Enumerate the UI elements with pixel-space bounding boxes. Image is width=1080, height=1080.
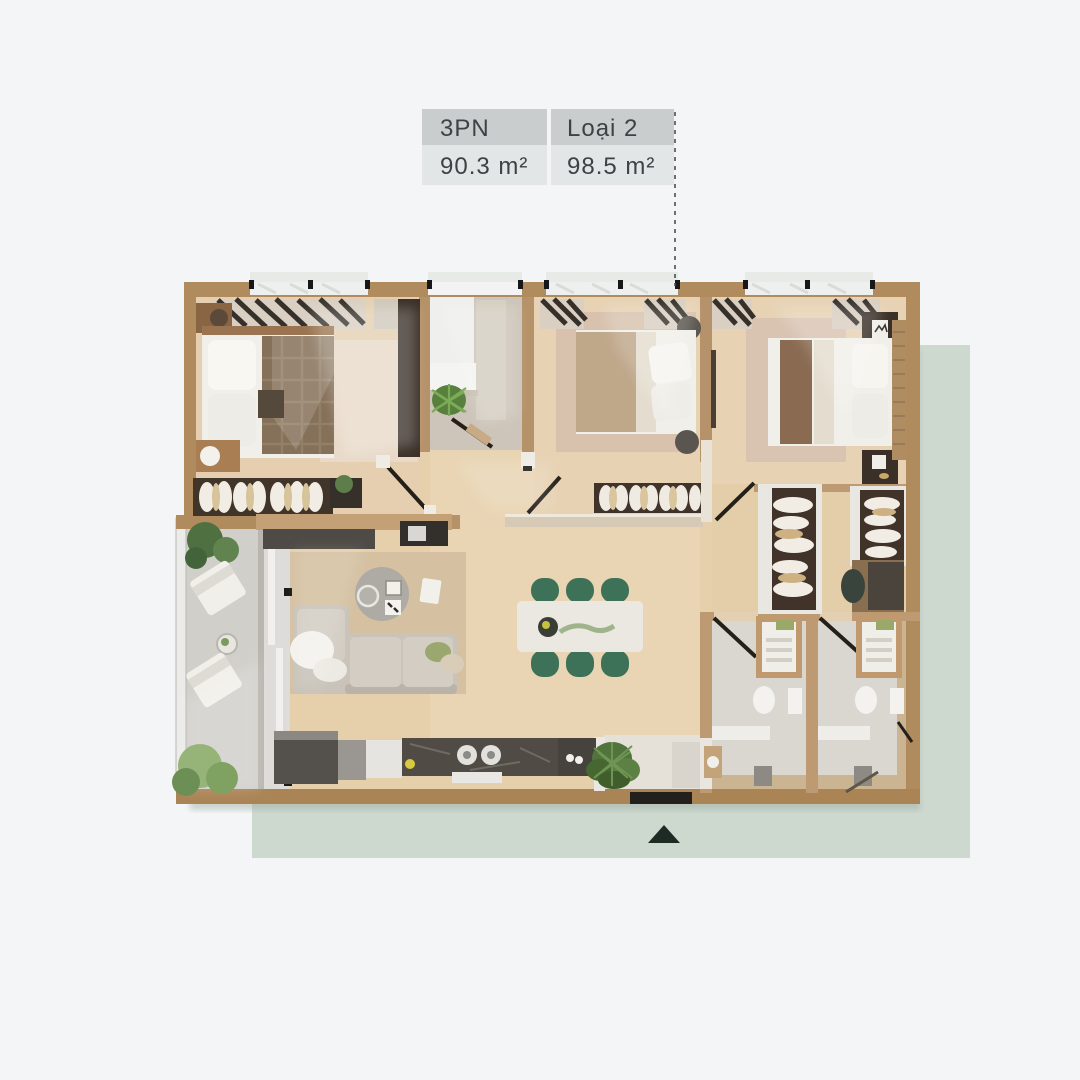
svg-text:Loại 2: Loại 2 bbox=[567, 115, 638, 142]
svg-text:98.5 m²: 98.5 m² bbox=[567, 153, 655, 180]
svg-text:90.3 m²: 90.3 m² bbox=[440, 153, 528, 180]
svg-text:3PN: 3PN bbox=[440, 115, 490, 142]
